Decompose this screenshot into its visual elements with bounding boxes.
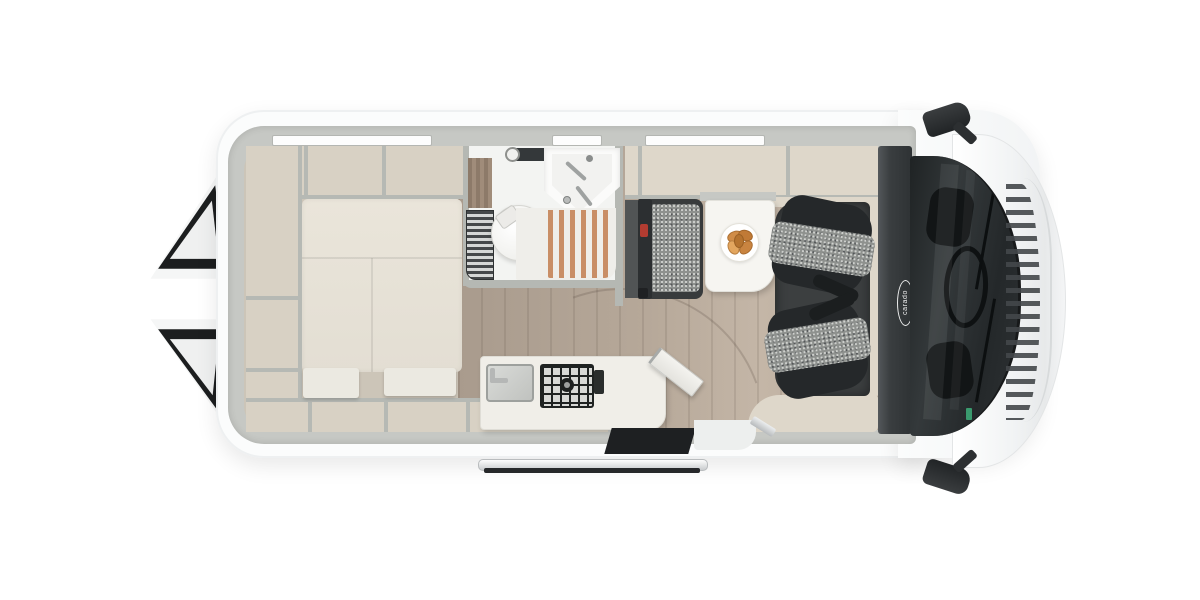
cabinet-divider (466, 402, 470, 432)
bed-backrest-cushions-icon (303, 368, 359, 398)
wardrobe-shelf-line (246, 368, 298, 372)
entry-sill (694, 420, 756, 450)
cabinet-divider (308, 402, 312, 432)
wardrobe-shelf-line (246, 296, 298, 300)
cabinet-divider (384, 402, 388, 432)
hob-control-panel-icon (594, 370, 604, 394)
roof-window-rear-icon (272, 135, 432, 146)
roof-window-front-icon (645, 135, 765, 146)
breakfast-plate-icon (720, 223, 759, 262)
rail-shadow (484, 468, 700, 473)
bed-seam-horizontal (302, 257, 462, 259)
locker-divider (638, 146, 642, 195)
shelf-divider (304, 146, 308, 195)
croissant-icon (734, 234, 744, 248)
bathroom-wall-bottom (463, 280, 621, 288)
wardrobe-column-icon (246, 146, 302, 432)
burner-cap-icon (564, 382, 570, 388)
bench-cushion (652, 204, 700, 292)
bench-back-panel (638, 199, 652, 299)
faucet-knob-icon (586, 155, 593, 162)
tall-cabinet-icon (625, 200, 638, 298)
inspection-tag-icon (966, 408, 972, 420)
shower-door-pivot-icon (505, 147, 520, 162)
kitchen-faucet-icon (490, 378, 508, 383)
shelf-divider (382, 146, 386, 195)
tambour-cabinet-icon (466, 210, 494, 280)
transverse-bed-icon (302, 199, 462, 372)
seatbelt-buckle-icon (640, 224, 648, 237)
belt-anchor-icon (638, 288, 648, 298)
bathroom-wood-shelf-icon (468, 158, 492, 208)
roof-window-mid-icon (552, 135, 602, 146)
sink-drain-icon (563, 196, 571, 204)
bed-backrest-cushions-icon (384, 368, 456, 396)
campervan-floorplan-image: carado (0, 0, 1200, 600)
shower-slatted-floor-icon (548, 210, 614, 278)
swivel-seat-driver-icon (761, 188, 883, 305)
entry-doorway-icon (604, 428, 695, 454)
bed-seam-vertical (371, 258, 373, 372)
locker-divider (786, 146, 790, 195)
